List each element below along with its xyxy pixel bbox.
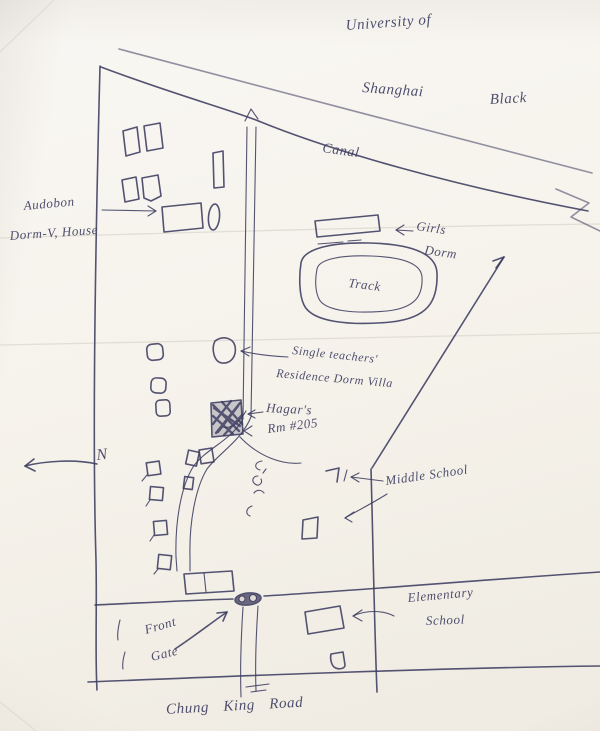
paper-creases	[0, 0, 600, 731]
elementary-school-building	[305, 606, 344, 634]
gate-hole	[250, 595, 257, 602]
label-bottom-road: Chung King Road	[166, 695, 304, 718]
label-west-line2: Dorm-V, House	[8, 222, 98, 243]
curved-road-left-edge	[176, 419, 243, 571]
squiggle	[247, 506, 252, 516]
elementary-small-building	[331, 652, 345, 669]
diagonal-sightline	[372, 257, 504, 468]
building-cluster-upper-left	[102, 123, 224, 232]
building-south-west	[184, 571, 234, 594]
canal-lower-bank	[101, 67, 588, 211]
middle-school-bracket	[326, 468, 339, 482]
gate-road-left-edge	[241, 607, 243, 697]
campus-west-boundary	[94, 66, 100, 690]
label-university-line1: University of	[345, 12, 433, 34]
hagars-room-building	[211, 400, 243, 437]
elementary-arrowhead	[353, 610, 362, 621]
map-labels: University of Shanghai Black Canal Audob…	[8, 12, 527, 718]
building	[199, 448, 214, 464]
campus-mid-boundary-left	[95, 599, 233, 605]
middle-school-building	[302, 517, 318, 539]
main-road-left-edge	[243, 127, 247, 419]
building	[186, 450, 200, 466]
building	[146, 461, 161, 476]
gate-road-right-edge	[256, 606, 258, 691]
building-cluster-inner-curve	[183, 448, 214, 490]
front-gate-pointer	[175, 612, 227, 649]
label-front-gate-line1: Front	[142, 614, 178, 638]
label-girls-dorm-line1: Girls	[416, 218, 448, 237]
roadside-squiggles	[247, 461, 266, 516]
stray-mark	[118, 620, 125, 669]
label-track: Track	[348, 275, 382, 294]
building	[184, 571, 234, 594]
girls-dorm-building	[315, 215, 380, 237]
road-tick-marks	[246, 684, 269, 692]
building	[183, 477, 193, 490]
middle-school-arrowhead-lower	[345, 512, 354, 522]
front-gate-marker	[234, 592, 261, 607]
main-road-right-edge	[251, 127, 256, 417]
building-divider	[204, 573, 206, 592]
teachers-villa-pointer	[241, 351, 288, 357]
building	[144, 123, 163, 151]
building	[149, 486, 163, 500]
building	[153, 520, 167, 535]
label-teachers-line2: Residence Dorm Villa	[275, 366, 394, 390]
label-middle-school: Middle School	[383, 462, 469, 489]
building	[156, 400, 171, 417]
pointer-line	[102, 210, 156, 211]
building	[122, 177, 139, 202]
label-west-line1: Audobon	[22, 194, 75, 213]
building	[213, 151, 224, 188]
squiggle	[256, 461, 262, 470]
building-tail	[146, 500, 150, 506]
label-compass-north: N	[95, 446, 110, 464]
label-hagars-line1: Hagar's	[265, 400, 313, 417]
building-tail	[142, 475, 147, 481]
building	[142, 175, 161, 201]
scanned-hand-drawn-map: University of Shanghai Black Canal Audob…	[0, 0, 600, 731]
label-elementary-line2: School	[426, 612, 465, 628]
middle-school-tick	[344, 470, 347, 481]
teachers-villa-building	[213, 338, 235, 363]
squiggle	[254, 490, 264, 493]
label-girls-dorm-line2: Dorm	[423, 242, 459, 262]
building-tail	[150, 535, 154, 541]
label-canal: Canal	[321, 141, 360, 161]
crease-line	[0, 0, 54, 52]
building-cluster-lower-left	[142, 461, 172, 574]
north-arrow	[25, 461, 97, 466]
squiggle	[253, 469, 266, 485]
gate-hole	[239, 596, 245, 602]
building-cluster-mid-left	[146, 343, 170, 416]
curved-road-right-edge	[190, 417, 251, 571]
label-front-gate-line2: Gate	[149, 643, 179, 664]
building	[146, 343, 164, 361]
building	[150, 378, 166, 394]
building	[157, 554, 171, 569]
building-tail	[154, 569, 158, 574]
label-university-line2: Shanghai	[362, 80, 424, 100]
girls-dorm-pointer	[396, 230, 413, 231]
building	[207, 204, 220, 231]
label-teachers-line1: Single teachers'	[292, 343, 379, 366]
building	[162, 203, 203, 232]
label-hagars-line2: Rm #205	[266, 415, 319, 436]
building	[123, 127, 140, 156]
label-elementary-line1: Elementary	[406, 584, 474, 605]
road-branch-stroke	[240, 437, 301, 463]
label-black: Black	[489, 90, 527, 108]
crease-line	[0, 702, 36, 731]
